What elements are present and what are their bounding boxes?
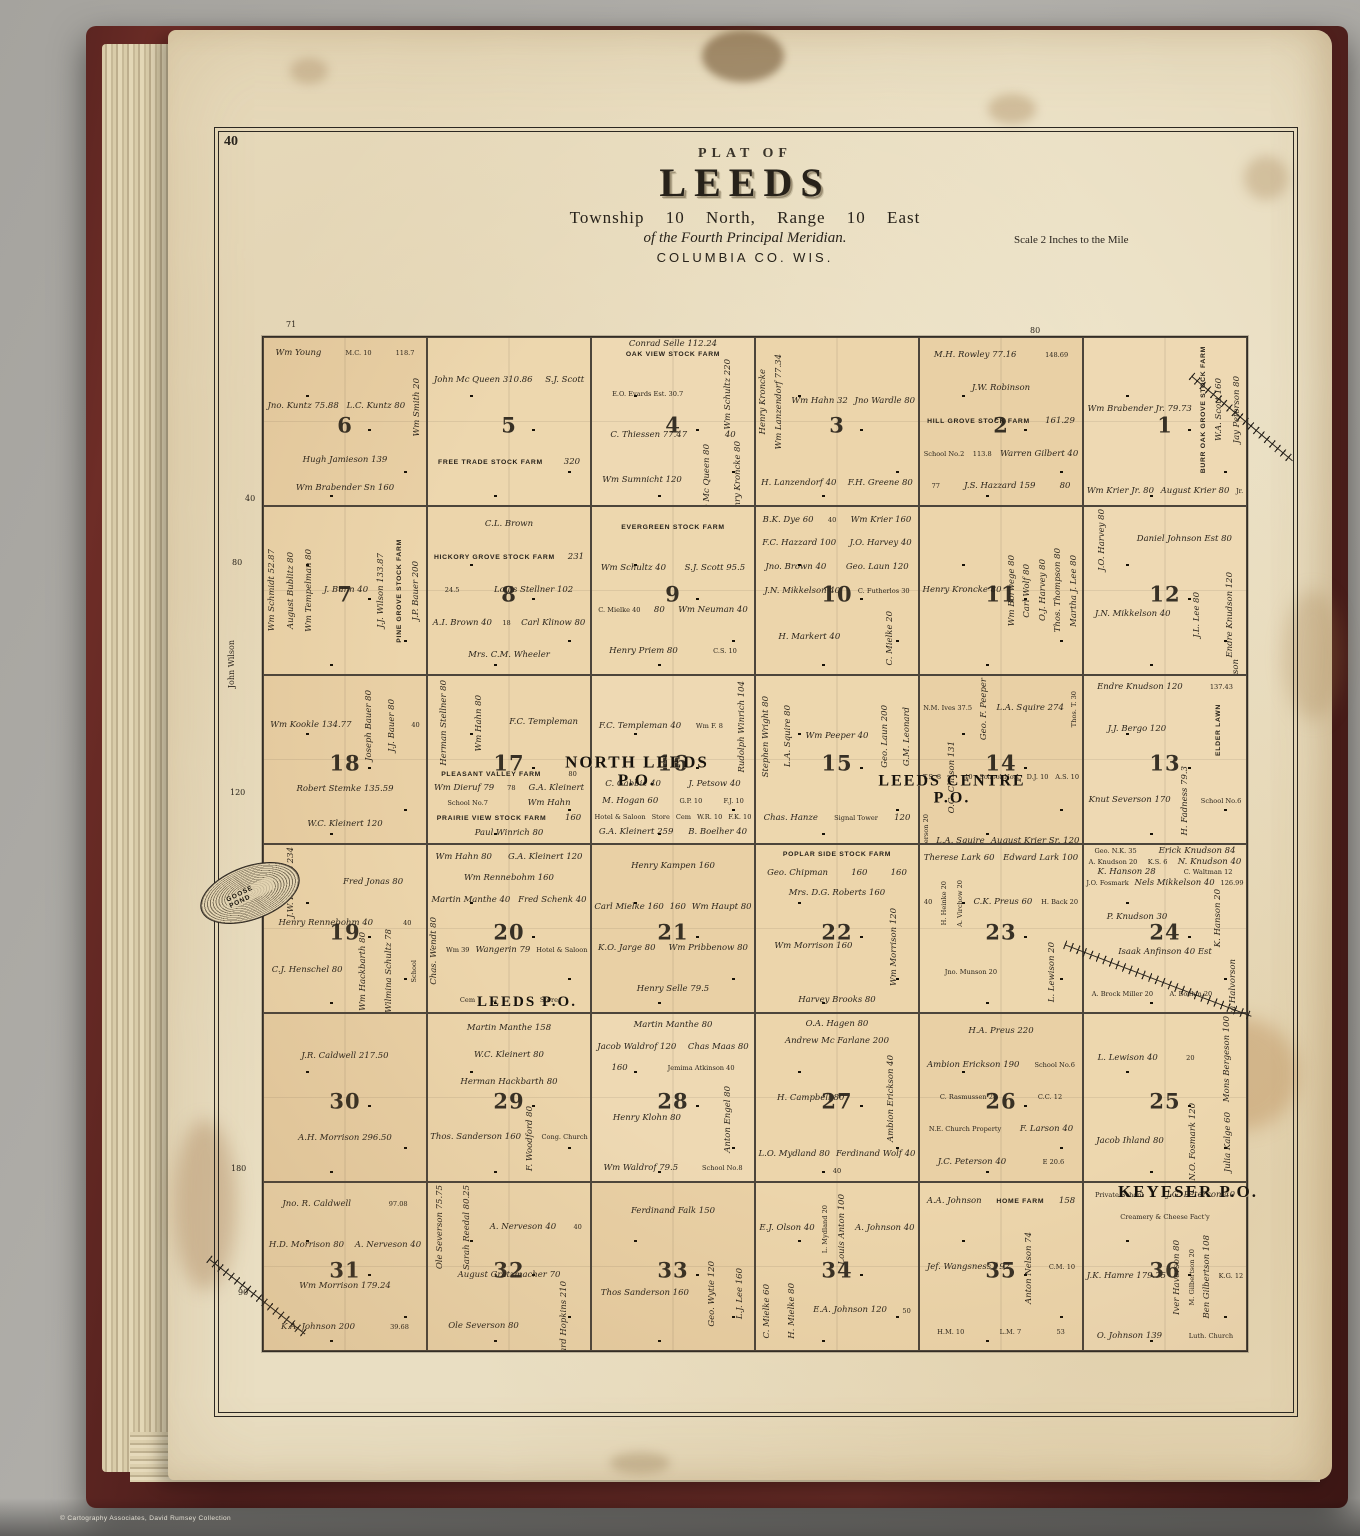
owner-label: Wm Morrison 179.24 (299, 1282, 391, 1292)
owner-label: Wm Schultz 40 (601, 564, 666, 574)
owner-label: Chas. Wendt 80 (430, 917, 440, 985)
section-10: 10B.K. Dye 6040Wm Krier 160F.C. Hazzard … (755, 506, 919, 675)
section-1: 1Wm Brabender Jr. 79.73BURR OAK GROVE ST… (1083, 337, 1247, 506)
owner-label: Wm Pribbenow 80 (669, 944, 748, 954)
owner-label: Jno. Brown 40 (765, 563, 826, 573)
section-29: 29Martin Manthe 158W.C. Kleinert 80Herma… (427, 1013, 591, 1182)
owner-label: Geo. Chipman (767, 869, 828, 879)
owner-label: L. Lewison 40 (1098, 1054, 1158, 1064)
owner-label: Jef. Wangsness 192 (927, 1263, 1010, 1273)
section-labels: A.A. JohnsonHOME FARM158Jef. Wangsness 1… (922, 1185, 1080, 1348)
owner-label: School No.7 (447, 800, 488, 807)
owner-label: Cem (460, 997, 475, 1004)
owner-label: John Mc Queen 310.86 (434, 376, 533, 386)
township-range-line: Township 10 North, Range 10 East (420, 208, 1070, 228)
owner-label: J.O. Fosmark (1086, 880, 1128, 887)
owner-label: H. Campbell 80 (777, 1094, 844, 1104)
owner-label: Wm Morrison 160 (774, 942, 852, 952)
section-labels: John Mc Queen 310.86S.J. ScottFREE TRADE… (430, 340, 588, 503)
owner-label: O.A. Hagen 80 (806, 1020, 869, 1030)
section-8: 8C.L. BrownHICKORY GROVE STOCK FARM23124… (427, 506, 591, 675)
margin-note: 80 (1030, 326, 1040, 335)
section-labels: POPLAR SIDE STOCK FARMGeo. Chipman160160… (758, 847, 916, 1010)
owner-label: Luth. Church (1189, 1333, 1233, 1340)
owner-label: F. Larson 40 (1020, 1125, 1073, 1135)
atlas-photo: 40 PLAT OF LEEDS Township 10 North, Rang… (0, 0, 1360, 1536)
owner-label: 97.08 (389, 1201, 408, 1208)
owner-label: Ferdinand Falk 150 (631, 1207, 715, 1217)
owner-label: Stephen Wright 80 (762, 696, 772, 777)
section-labels: J.O. Harvey 80Daniel Johnson Est 80J.N. … (1086, 509, 1244, 672)
section-21: 21Henry Kampen 160Carl Mielke 160160Wm H… (591, 844, 755, 1013)
map-title: LEEDS (420, 162, 1070, 204)
owner-label: Wm Neuman 40 (678, 606, 748, 616)
owner-label: 126.99 (1221, 880, 1244, 887)
owner-label: C. Waltman 12 (1184, 869, 1233, 876)
owner-label: 160 (611, 1064, 627, 1074)
owner-label: Conrad Selle 112.24 (629, 340, 717, 350)
section-labels: Martin Manthe 158W.C. Kleinert 80Herman … (430, 1016, 588, 1179)
owner-label: 118.7 (396, 350, 415, 357)
owner-label: 40 (833, 1168, 841, 1175)
owner-label: Ben Gilbertson 108 (1203, 1235, 1213, 1319)
section-36: 36Private SchoolJ.G. Peterson 40Creamery… (1083, 1182, 1247, 1351)
section-labels: Endre Knudson 120137.43J.J. Bergo 120ELD… (1086, 678, 1244, 841)
section-labels: Ole Severson 75.75Sarah Reedal 80.25A. N… (430, 1185, 588, 1348)
section-27: 27O.A. Hagen 80Andrew Mc Farlane 200H. C… (755, 1013, 919, 1182)
owner-label: August Bublitz 80 (287, 552, 297, 629)
owner-label: J.S. Hazzard 159 (964, 482, 1035, 492)
owner-label: 40 (403, 920, 411, 927)
owner-label: Chas. Hanze (764, 814, 818, 824)
owner-label: 158 (1059, 1197, 1075, 1207)
owner-label: Therese Lark 60 (924, 854, 995, 864)
owner-label: 231 (568, 553, 584, 563)
owner-label: Martin Manthe 40 (431, 896, 510, 906)
owner-label: Fred Schenk 40 (518, 896, 586, 906)
owner-label: C. Mielke 40 (598, 607, 640, 614)
owner-label: Geo. Laun 120 (846, 563, 909, 573)
owner-label: F.C. Hazzard 100 (762, 539, 836, 549)
owner-label: N.E. Church Property (929, 1126, 1001, 1133)
owner-label: Carl Wolf 80 (1023, 564, 1033, 618)
owner-label: K.G. 12 (1219, 1273, 1244, 1280)
owner-label: C.J. Henschel 80 (272, 966, 343, 976)
owner-label: Henry Kampen 160 (631, 862, 715, 872)
owner-label: O.J. Harvey 80 (1039, 559, 1049, 621)
owner-label: Anton Nelson 74 (1025, 1232, 1035, 1304)
owner-label: 77 (932, 483, 940, 490)
owner-label: H. Markert 40 (778, 633, 840, 643)
section-labels: E.J. Olson 40L. Mydland 20Louis Anton 10… (758, 1185, 916, 1348)
owner-label: Cem (676, 814, 691, 821)
owner-label: S.J. Scott (545, 376, 584, 386)
owner-label: N.M. Ives 37.5 (923, 705, 972, 712)
section-labels: Wm Kookle 134.77Joseph Bauer 80J.J. Baue… (266, 678, 424, 841)
owner-label: 80 (1060, 482, 1071, 492)
owner-label: Wm F. 8 (696, 723, 723, 730)
owner-label: A.I. Brown 40 (433, 619, 492, 629)
owner-label: W.R. 10 (697, 814, 722, 821)
owner-label: School No.2 (924, 451, 965, 458)
section-23: 23Therese Lark 60Edward Lark 10040H. Hei… (919, 844, 1083, 1013)
owner-label: 40 (725, 431, 736, 441)
owner-label: Ferdinand Wolf 40 (836, 1150, 916, 1160)
owner-label: Richard Hopkins 210 (560, 1281, 570, 1351)
owner-label: Thos. Thompson 80 (1054, 548, 1064, 632)
owner-label: Signal Tower (834, 815, 878, 822)
owner-label: Jacob Ihland 80 (1096, 1137, 1164, 1147)
owner-label: Geo. F. Peeper (980, 678, 990, 740)
owner-label: L.C. Kuntz 80 (347, 402, 405, 412)
section-labels: B.K. Dye 6040Wm Krier 160F.C. Hazzard 10… (758, 509, 916, 672)
owner-label: Isaak Anfinson 40 Est (1118, 948, 1212, 958)
owner-label: J.O. Harvey 80 (1098, 509, 1108, 571)
owner-label: 160 (670, 903, 686, 913)
farm-name-label: HICKORY GROVE STOCK FARM (434, 554, 555, 562)
owner-label: L. Lewison 20 (1048, 942, 1058, 1002)
owner-label: Jno. Kuntz 75.88 (267, 402, 338, 412)
owner-label: G.A. Kleinert 259 (599, 828, 673, 838)
owner-label: J.C. Peterson 40 (938, 1158, 1006, 1168)
owner-label: Wm 39 (446, 947, 470, 954)
owner-label: C. Thiessen 77.47 (610, 431, 687, 441)
owner-label: 161.29 (1045, 417, 1075, 427)
owner-label: Jno. R. Caldwell (282, 1200, 351, 1210)
owner-label: G.P. 10 (679, 798, 702, 805)
margin-note: 71 (286, 320, 296, 329)
owner-label: F.J. 10 (724, 798, 744, 805)
owner-label: A.A. Johnson (927, 1197, 982, 1207)
owner-label: School No.6 (1034, 1062, 1075, 1069)
owner-label: Jno. Munson 20 (945, 969, 997, 976)
section-labels: Therese Lark 60Edward Lark 10040H. Heink… (922, 847, 1080, 1010)
owner-label: H. Back 20 (1041, 899, 1078, 906)
section-12: 12J.O. Harvey 80Daniel Johnson Est 80J.N… (1083, 506, 1247, 675)
owner-label: Edward Lark 100 (1003, 854, 1078, 864)
owner-label: Jno Wardle 80 (855, 397, 916, 407)
owner-label: H. Lanzendorf 40 (761, 479, 836, 489)
section-labels: N.M. Ives 37.5Geo. F. PeeperL.A. Squire … (922, 678, 1080, 841)
section-labels: Martin Manthe 80Jacob Waldrof 120Chas Ma… (594, 1016, 752, 1179)
owner-label: Wm Waldrof 79.5 (603, 1164, 678, 1174)
owner-label: C.K. Preus 60 (973, 898, 1032, 908)
owner-label: Herman Stellner 80 (440, 680, 450, 766)
owner-label: 18 (502, 620, 510, 627)
owner-label: Julia Kalge 60 (1224, 1112, 1234, 1172)
owner-label: Geo. N.K. 35 (1095, 848, 1137, 855)
section-labels: Wm Brabender Jr. 79.73BURR OAK GROVE STO… (1086, 340, 1244, 503)
owner-label: Ole Severson 80 (448, 1322, 519, 1332)
section-labels: M.H. Rowley 77.16148.69J.W. RobinsonHILL… (922, 340, 1080, 503)
farm-name-label: HOME FARM (996, 1198, 1044, 1206)
owner-label: 20 (1186, 1055, 1194, 1062)
owner-label: Wm Brabender Sn 160 (296, 484, 394, 494)
owner-label: Wm Dieruf 79 (434, 784, 494, 794)
owner-label: Thos. Sanderson 160 (430, 1133, 521, 1143)
owner-label: F.C. Templeman 40 (599, 722, 681, 732)
owner-label: L.A. Squire 274 (997, 704, 1064, 714)
owner-label: Rudolph Winrich 104 (738, 681, 748, 773)
margin-note: John Wilson (227, 640, 236, 688)
owner-label: Andrew Mc Farlane 200 (785, 1037, 889, 1047)
owner-label: B.K. Dye 60 (763, 516, 814, 526)
owner-label: S.J. Scott 95.5 (685, 564, 746, 574)
section-labels: Henry Kroncke 80Wm Borwege 80Carl Wolf 8… (922, 509, 1080, 672)
owner-label: C. Rasmussen 28 (940, 1094, 997, 1101)
owner-label: K.S. 6 (1148, 859, 1168, 866)
owner-label: Creamery & Cheese Fact'y (1120, 1214, 1210, 1221)
owner-label: August Krier Sr. 120 (991, 837, 1080, 844)
keyeser-po-label: KEYESER P.O. (1118, 1183, 1258, 1201)
section-labels: EVERGREEN STOCK FARMWm Schultz 40S.J. Sc… (594, 509, 752, 672)
owner-label: Harvey Brooks 80 (798, 996, 875, 1006)
margin-note: 90 (238, 1288, 248, 1297)
section-labels: Wm Hahn 80G.A. Kleinert 120Wm Rennebohm … (430, 847, 588, 1010)
section-13: 13Endre Knudson 120137.43J.J. Bergo 120E… (1083, 675, 1247, 844)
owner-label: Wm Krier Jr. 80 (1087, 487, 1154, 497)
section-labels: C.L. BrownHICKORY GROVE STOCK FARM23124.… (430, 509, 588, 672)
owner-label: L.J. Lee 160 (736, 1268, 746, 1319)
owner-label: L. Mydland 20 (822, 1205, 829, 1253)
county-line: COLUMBIA CO. WIS. (420, 250, 1070, 265)
owner-label: 148.69 (1045, 352, 1068, 359)
owner-label: Martin Manthe 158 (467, 1024, 551, 1034)
section-labels: O.A. Hagen 80Andrew Mc Farlane 200H. Cam… (758, 1016, 916, 1179)
section-labels: Ferdinand Falk 150Thos Sanderson 160Geo.… (594, 1185, 752, 1348)
owner-label: Henry Priem 80 (609, 647, 678, 657)
section-5: 5John Mc Queen 310.86S.J. ScottFREE TRAD… (427, 337, 591, 506)
owner-label: Wm Young (275, 349, 321, 359)
owner-label: 137.43 (1210, 684, 1233, 691)
owner-label: E.J. Olson 40 (759, 1224, 814, 1234)
section-34: 34E.J. Olson 40L. Mydland 20Louis Anton … (755, 1182, 919, 1351)
section-labels: Private SchoolJ.G. Peterson 40Creamery &… (1086, 1185, 1244, 1348)
owner-label: 120 (894, 814, 910, 824)
farm-name-label: EVERGREEN STOCK FARM (621, 524, 724, 532)
section-32: 32Ole Severson 75.75Sarah Reedal 80.25A.… (427, 1182, 591, 1351)
owner-label: Wm Hahn 80 (436, 853, 492, 863)
section-30: 30J.R. Caldwell 217.50A.H. Morrison 296.… (263, 1013, 427, 1182)
owner-label: C.S. 10 (713, 648, 737, 655)
owner-label: Wm Rennebohm 160 (464, 874, 554, 884)
owner-label: Wm Kookle 134.77 (270, 721, 351, 731)
owner-label: 320 (564, 458, 580, 468)
owner-label: J. Bunn 40 (324, 586, 368, 596)
owner-label: K. Hanson 20 (1214, 889, 1224, 947)
owner-label: C.L. Brown (485, 520, 533, 530)
owner-label: Wm Tempelman 80 (305, 549, 315, 632)
owner-label: Henry Selle 79.5 (637, 985, 709, 995)
owner-label: Daniel Johnson Est 80 (1137, 535, 1232, 545)
section-14: 14N.M. Ives 37.5Geo. F. PeeperL.A. Squir… (919, 675, 1083, 844)
owner-label: H. Mielke 80 (788, 1283, 798, 1339)
owner-label: O. Johnson 139 (1097, 1332, 1162, 1342)
owner-label: N.O. Fosmark 120 (1189, 1103, 1199, 1181)
owner-label: August Gratzmacher 70 (458, 1271, 561, 1281)
owner-label: Joseph Bauer 80 (365, 690, 375, 761)
section-28: 28Martin Manthe 80Jacob Waldrof 120Chas … (591, 1013, 755, 1182)
owner-label: Louis Stellner 102 (494, 586, 573, 596)
owner-label: Fred Jonas 80 (343, 878, 403, 888)
section-labels: Henry Kampen 160Carl Mielke 160160Wm Hau… (594, 847, 752, 1010)
owner-label: Louis Anton 100 (838, 1194, 848, 1265)
owner-label: Henry Kroncke (759, 369, 769, 434)
owner-label: G.A. Kleinert 120 (508, 853, 582, 863)
section-7: 7Wm Schmidt 52.87August Bublitz 80Wm Tem… (263, 506, 427, 675)
owner-label: 39.68 (390, 1324, 409, 1331)
owner-label: Endre Knudson 120 (1097, 683, 1183, 693)
owner-label: C.C. 12 (1038, 1094, 1062, 1101)
owner-label: H.A. Preus 220 (968, 1027, 1033, 1037)
section-labels: Stephen Wright 80L.A. Squire 80Wm Peeper… (758, 678, 916, 841)
section-2: 2M.H. Rowley 77.16148.69J.W. RobinsonHIL… (919, 337, 1083, 506)
owner-label: Wm Borwege 80 (1008, 555, 1018, 626)
owner-label: A. Nerveson 40 (355, 1241, 421, 1251)
owner-label: C. Mielke 20 (886, 611, 896, 665)
owner-label: Endre Knudson 120 (1226, 572, 1236, 658)
owner-label: P. Knudson 30 (1107, 913, 1168, 923)
owner-label: Carl Mielke 160 (594, 903, 663, 913)
owner-label: W.C. Kleinert 120 (307, 820, 382, 830)
owner-label: Ambion Erickson 190 (927, 1061, 1019, 1071)
section-25: 25L. Lewison 4020Mons Bergeson 100Jacob … (1083, 1013, 1247, 1182)
owner-label: Thos Sanderson 160 (601, 1289, 689, 1299)
owner-label: Erick Knudson 84 (1159, 847, 1236, 857)
owner-label: A.H. Morrison 296.50 (298, 1134, 392, 1144)
margin-note: 80 (232, 558, 242, 567)
owner-label: Knut Severson 170 (1089, 796, 1171, 806)
section-labels: Conrad Selle 112.24OAK VIEW STOCK FARME.… (594, 340, 752, 503)
owner-label: Wm Smith 20 (413, 378, 423, 437)
owner-label: G.M. Leonard (903, 707, 913, 766)
margin-note: 120 (230, 788, 245, 797)
owner-label: E.O. Evards Est. 30.7 (612, 391, 683, 398)
owner-label: Wm Sumnicht 120 (602, 476, 682, 486)
owner-label: H. Heinke 20 (941, 881, 948, 925)
owner-label: Robert Stemke 135.59 (296, 785, 393, 795)
owner-label: Mrs. C.M. Wheeler (468, 651, 550, 661)
owner-label: 160 (851, 869, 867, 879)
owner-label: H. Fadness 79.3 (1181, 766, 1191, 836)
owner-label: L.A. Squire 80 (784, 705, 794, 767)
north-leeds-po-label: NORTH LEEDSP.O. (565, 754, 709, 791)
owner-label: August Krier 80 (1161, 487, 1230, 497)
section-labels: Wm Schmidt 52.87August Bublitz 80Wm Temp… (266, 509, 424, 672)
owner-label: 24.5 (445, 587, 460, 594)
section-labels: H.A. Preus 220Ambion Erickson 190School … (922, 1016, 1080, 1179)
owner-label: Iver Haverson 80 (1173, 1240, 1183, 1315)
owner-label: Hotel & Saloon (536, 947, 587, 954)
owner-label: Huber Halvorson (1232, 659, 1242, 675)
owner-label: Wilmina Schultz 78 (385, 929, 395, 1013)
owner-label: Martha J. Lee 80 (1070, 555, 1080, 627)
owner-label: 160 (891, 869, 907, 879)
owner-label: Wm Hahn (528, 799, 571, 809)
owner-label: Wm Schmidt 52.87 (268, 549, 278, 631)
margin-note: 40 (245, 494, 255, 503)
section-labels: Wm YoungM.C. 10118.7Jno. Kuntz 75.88L.C.… (266, 340, 424, 503)
owner-label: K. Hanson 28 (1098, 868, 1156, 878)
owner-label: Chas Maas 80 (688, 1043, 749, 1053)
owner-label: Geo. Laun 200 (881, 705, 891, 768)
owner-label: J.J. Wilson 133.87 (377, 553, 387, 628)
owner-label: 113.8 (973, 451, 992, 458)
farm-name-label: PINE GROVE STOCK FARM (396, 539, 404, 643)
owner-label: F.C. Templeman (509, 718, 578, 728)
owner-label: 160 (565, 814, 581, 824)
owner-label: E.A. Johnson 120 (813, 1306, 887, 1316)
owner-label: Henry Klohn 80 (613, 1114, 681, 1124)
owner-label: H.D. Morrison 80 (269, 1241, 344, 1251)
owner-label: 40 (924, 899, 932, 906)
owner-label: J.K. Hamre 179.75 (1087, 1272, 1166, 1282)
owner-label: Nels Mikkelson 40 (1135, 879, 1215, 889)
owner-label: B. Boelher 40 (688, 828, 747, 838)
owner-label: A.S. 10 (1055, 774, 1079, 781)
owner-label: Ole Severson 75.75 (436, 1185, 446, 1269)
section-35: 35A.A. JohnsonHOME FARM158Jef. Wangsness… (919, 1182, 1083, 1351)
owner-label: Wm Schultz 220 (724, 359, 734, 430)
owner-label: N. Knudson 40 (1178, 858, 1242, 868)
leeds-po-label: LEEDS P.O. (477, 994, 577, 1010)
owner-label: 78 (507, 785, 515, 792)
owner-label: Henry Kroncke 80 (923, 586, 1002, 596)
section-18: 18Wm Kookle 134.77Joseph Bauer 80J.J. Ba… (263, 675, 427, 844)
owner-label: Henry Rennebohm 40 (279, 919, 374, 929)
section-33: 33Ferdinand Falk 150Thos Sanderson 160Ge… (591, 1182, 755, 1351)
page-number: 40 (224, 134, 238, 150)
owner-label: A. Nerveson 40 (490, 1223, 556, 1233)
owner-label: Jacob Waldrof 120 (597, 1043, 676, 1053)
owner-label: Wm Hahn 80 (475, 695, 485, 751)
owner-label: C. Mielke 60 (763, 1284, 773, 1338)
section-22: 22POPLAR SIDE STOCK FARMGeo. Chipman1601… (755, 844, 919, 1013)
owner-label: Wm Morrison 120 (890, 908, 900, 986)
owner-label: Mrs. D.G. Roberts 160 (789, 889, 885, 899)
owner-label: School (411, 960, 418, 983)
section-9: 9EVERGREEN STOCK FARMWm Schultz 40S.J. S… (591, 506, 755, 675)
owner-label: A. Brock Miller 20 (1092, 991, 1153, 998)
owner-label: J.N. Mikkelson 40 (1095, 610, 1171, 620)
owner-label: W.C. Kleinert 80 (474, 1051, 544, 1061)
owner-label: Warren Gilbert 40 (1000, 450, 1078, 460)
owner-label: M. Gilbertson 20 (1189, 1249, 1196, 1305)
section-3: 3Henry KronckeWm Lanzendorf 77.34Wm Hahn… (755, 337, 919, 506)
township-grid: 6Wm YoungM.C. 10118.7Jno. Kuntz 75.88L.C… (262, 336, 1248, 1352)
farm-name-label: PLEASANT VALLEY FARM (441, 771, 541, 779)
owner-label: M. Hogan 60 (602, 797, 658, 807)
farm-name-label: ELDER LAWN (1215, 704, 1223, 756)
owner-label: J.J. Bauer 80 (388, 699, 398, 752)
owner-label: L.M. 7 (1000, 1329, 1022, 1336)
owner-label: M.H. Rowley 77.16 (934, 351, 1017, 361)
section-6: 6Wm YoungM.C. 10118.7Jno. Kuntz 75.88L.C… (263, 337, 427, 506)
owner-label: A. Johnson 40 (855, 1224, 915, 1234)
owner-label: S. Holgerson 20 (923, 814, 930, 844)
section-4: 4Conrad Selle 112.24OAK VIEW STOCK FARME… (591, 337, 755, 506)
section-26: 26H.A. Preus 220Ambion Erickson 190Schoo… (919, 1013, 1083, 1182)
section-15: 15Stephen Wright 80L.A. Squire 80Wm Peep… (755, 675, 919, 844)
leeds-centre-po-label: LEEDS CENTREP.O. (878, 773, 1025, 808)
owner-label: 53 (1056, 1329, 1064, 1336)
owner-label: C.M. 10 (1049, 1264, 1075, 1271)
owner-label: Sarah Reedal 80.25 (463, 1185, 473, 1270)
farm-name-label: PRAIRIE VIEW STOCK FARM (437, 815, 547, 823)
farm-name-label: OAK VIEW STOCK FARM (626, 351, 720, 359)
owner-label: Carl Klinow 80 (521, 619, 585, 629)
owner-label: A. Virchow 20 (957, 880, 964, 927)
